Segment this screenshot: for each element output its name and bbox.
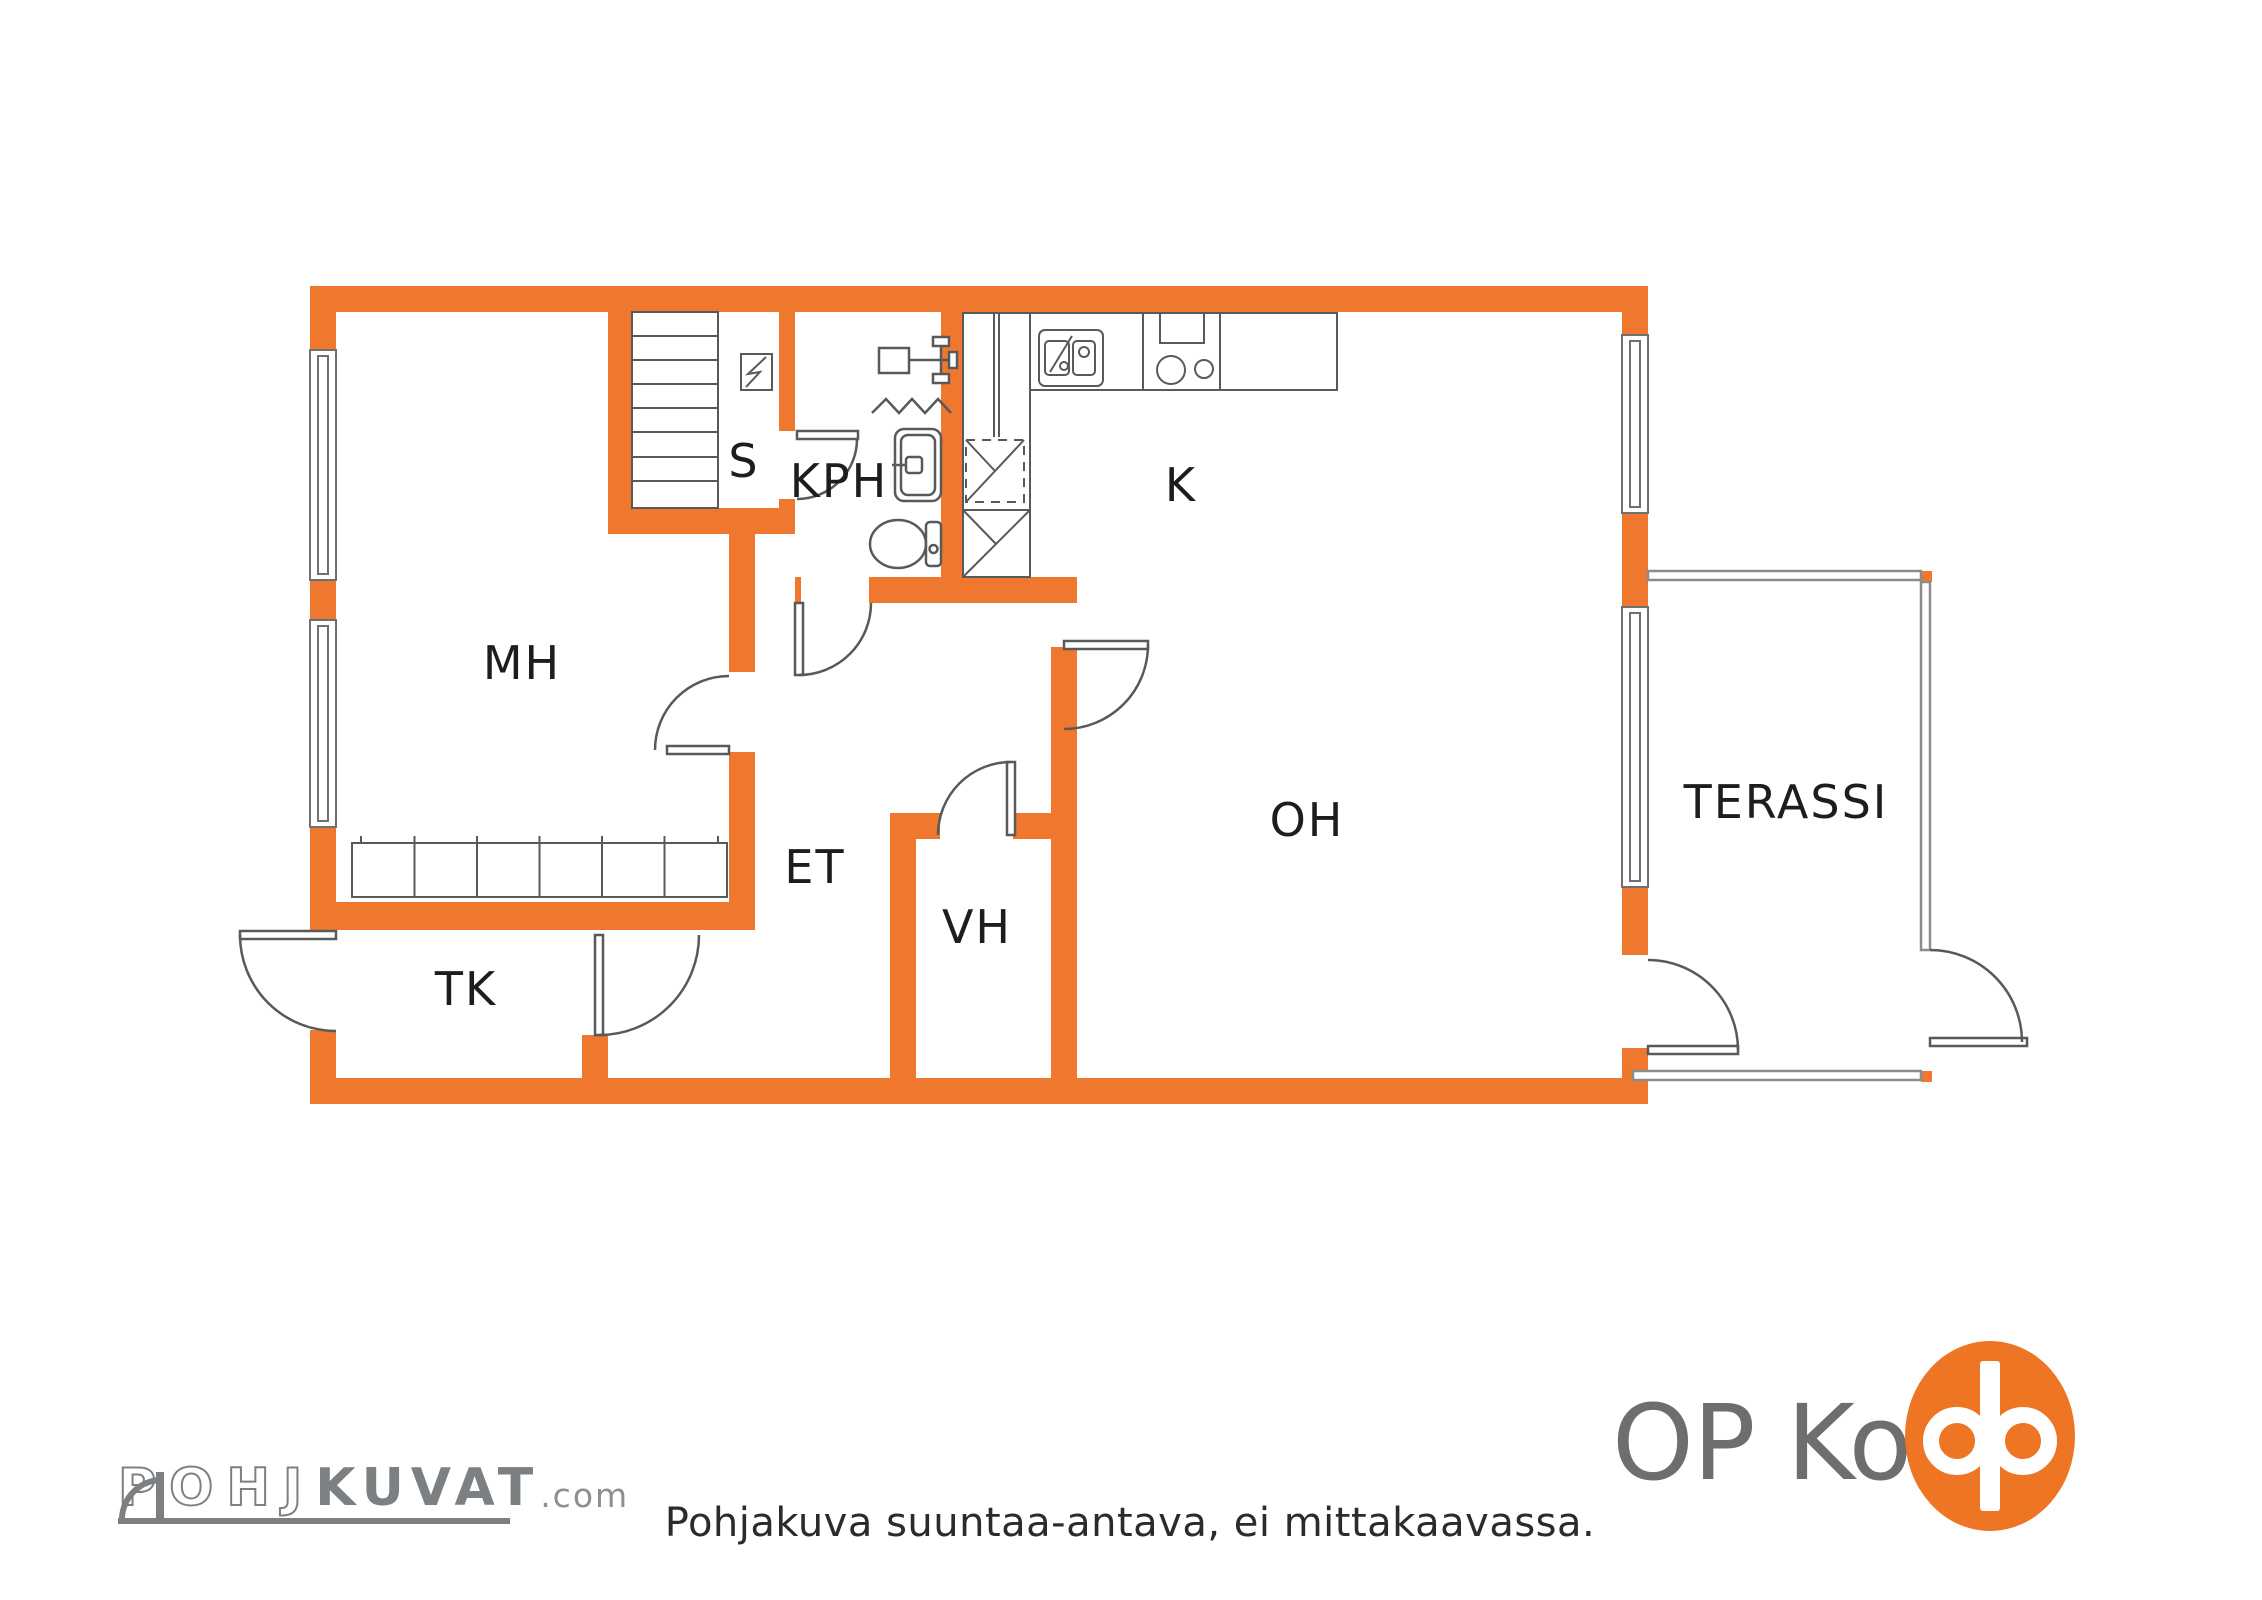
wall-right-seg3 [1622,887,1648,955]
room-label-s: S [728,434,759,488]
window-mh-upper [310,350,336,580]
room-label-oh: OH [1270,793,1345,847]
room-label-et: ET [784,840,845,894]
terrace-post-top [1921,571,1932,582]
floor-plan-page: MH S KPH K OH ET VH TK TERASSI Pohjakuva… [0,0,2262,1600]
sink-icon [892,429,941,501]
wall-et-k [941,577,1077,603]
wall-left-seg2 [310,580,336,620]
wall-mh-et-upper [729,534,755,672]
wall-right-seg1 [1622,286,1648,335]
wall-kph-bottom-jamb [795,577,801,603]
pohjakuvat-logo: POHJ KUVAT .com [118,1462,510,1524]
door-terrace-exterior [1930,950,2027,1046]
op-group-logo-icon [1905,1341,2075,1531]
wall-vh-left [890,839,916,1078]
room-label-vh: VH [942,900,1012,954]
wall-bottom [310,1078,1648,1104]
pohjakuvat-logo-suffix: .com [540,1478,629,1514]
door-mh [655,676,729,754]
shower-mixer-icon [879,337,957,383]
terrace-wall-bottom [1633,1071,1921,1080]
door-arc-icon [118,1462,166,1526]
stairs-icon [632,312,718,508]
wall-sauna-right-top [779,312,795,431]
zigzag-icon [872,399,951,413]
terrace-wall-top [1648,571,1921,580]
room-label-kph: KPH [790,454,889,508]
wall-tk-right-stub [582,1035,608,1078]
room-label-mh: MH [483,636,561,690]
room-label-terassi: TERASSI [1684,775,1889,829]
wall-sauna-left [608,312,632,534]
wall-sauna-bottom [608,508,795,534]
room-label-k: K [1165,458,1197,512]
wall-kph-bottom [869,577,941,603]
terrace-post-bottom [1921,1071,1932,1082]
wall-mh-et-lower [729,752,755,902]
wall-top [310,286,1648,312]
wall-vh-top-left [890,813,940,839]
door-oh-terrace [1648,960,1738,1054]
window-mh-lower [310,620,336,827]
wall-et-oh [1051,647,1077,1078]
wall-left-seg4 [310,1030,336,1104]
door-vh [938,762,1015,835]
terrace-wall-right [1921,582,1930,950]
wall-vh-top-right [1013,813,1051,839]
wall-mh-bottom [310,902,755,930]
door-entrance [240,931,336,1031]
lightning-square-icon [741,354,772,390]
room-label-tk: TK [435,962,497,1016]
wall-left-seg1 [310,286,336,350]
interior-walls [310,312,1932,1082]
kitchen-counter [1030,313,1337,390]
toilet-icon [870,520,941,568]
window-oh-lower [1622,607,1648,887]
pohjakuvat-logo-solid-text: KUVAT [315,1462,540,1514]
appliance-column [963,313,1030,577]
door-tk-interior [595,935,699,1035]
doors [240,431,2027,1054]
wall-right-seg2 [1622,513,1648,607]
window-oh-upper [1622,335,1648,513]
door-kph [795,603,871,675]
wardrobe-icon [352,836,727,897]
disclaimer-text: Pohjakuva suuntaa-antava, ei mittakaavas… [665,1500,1596,1546]
